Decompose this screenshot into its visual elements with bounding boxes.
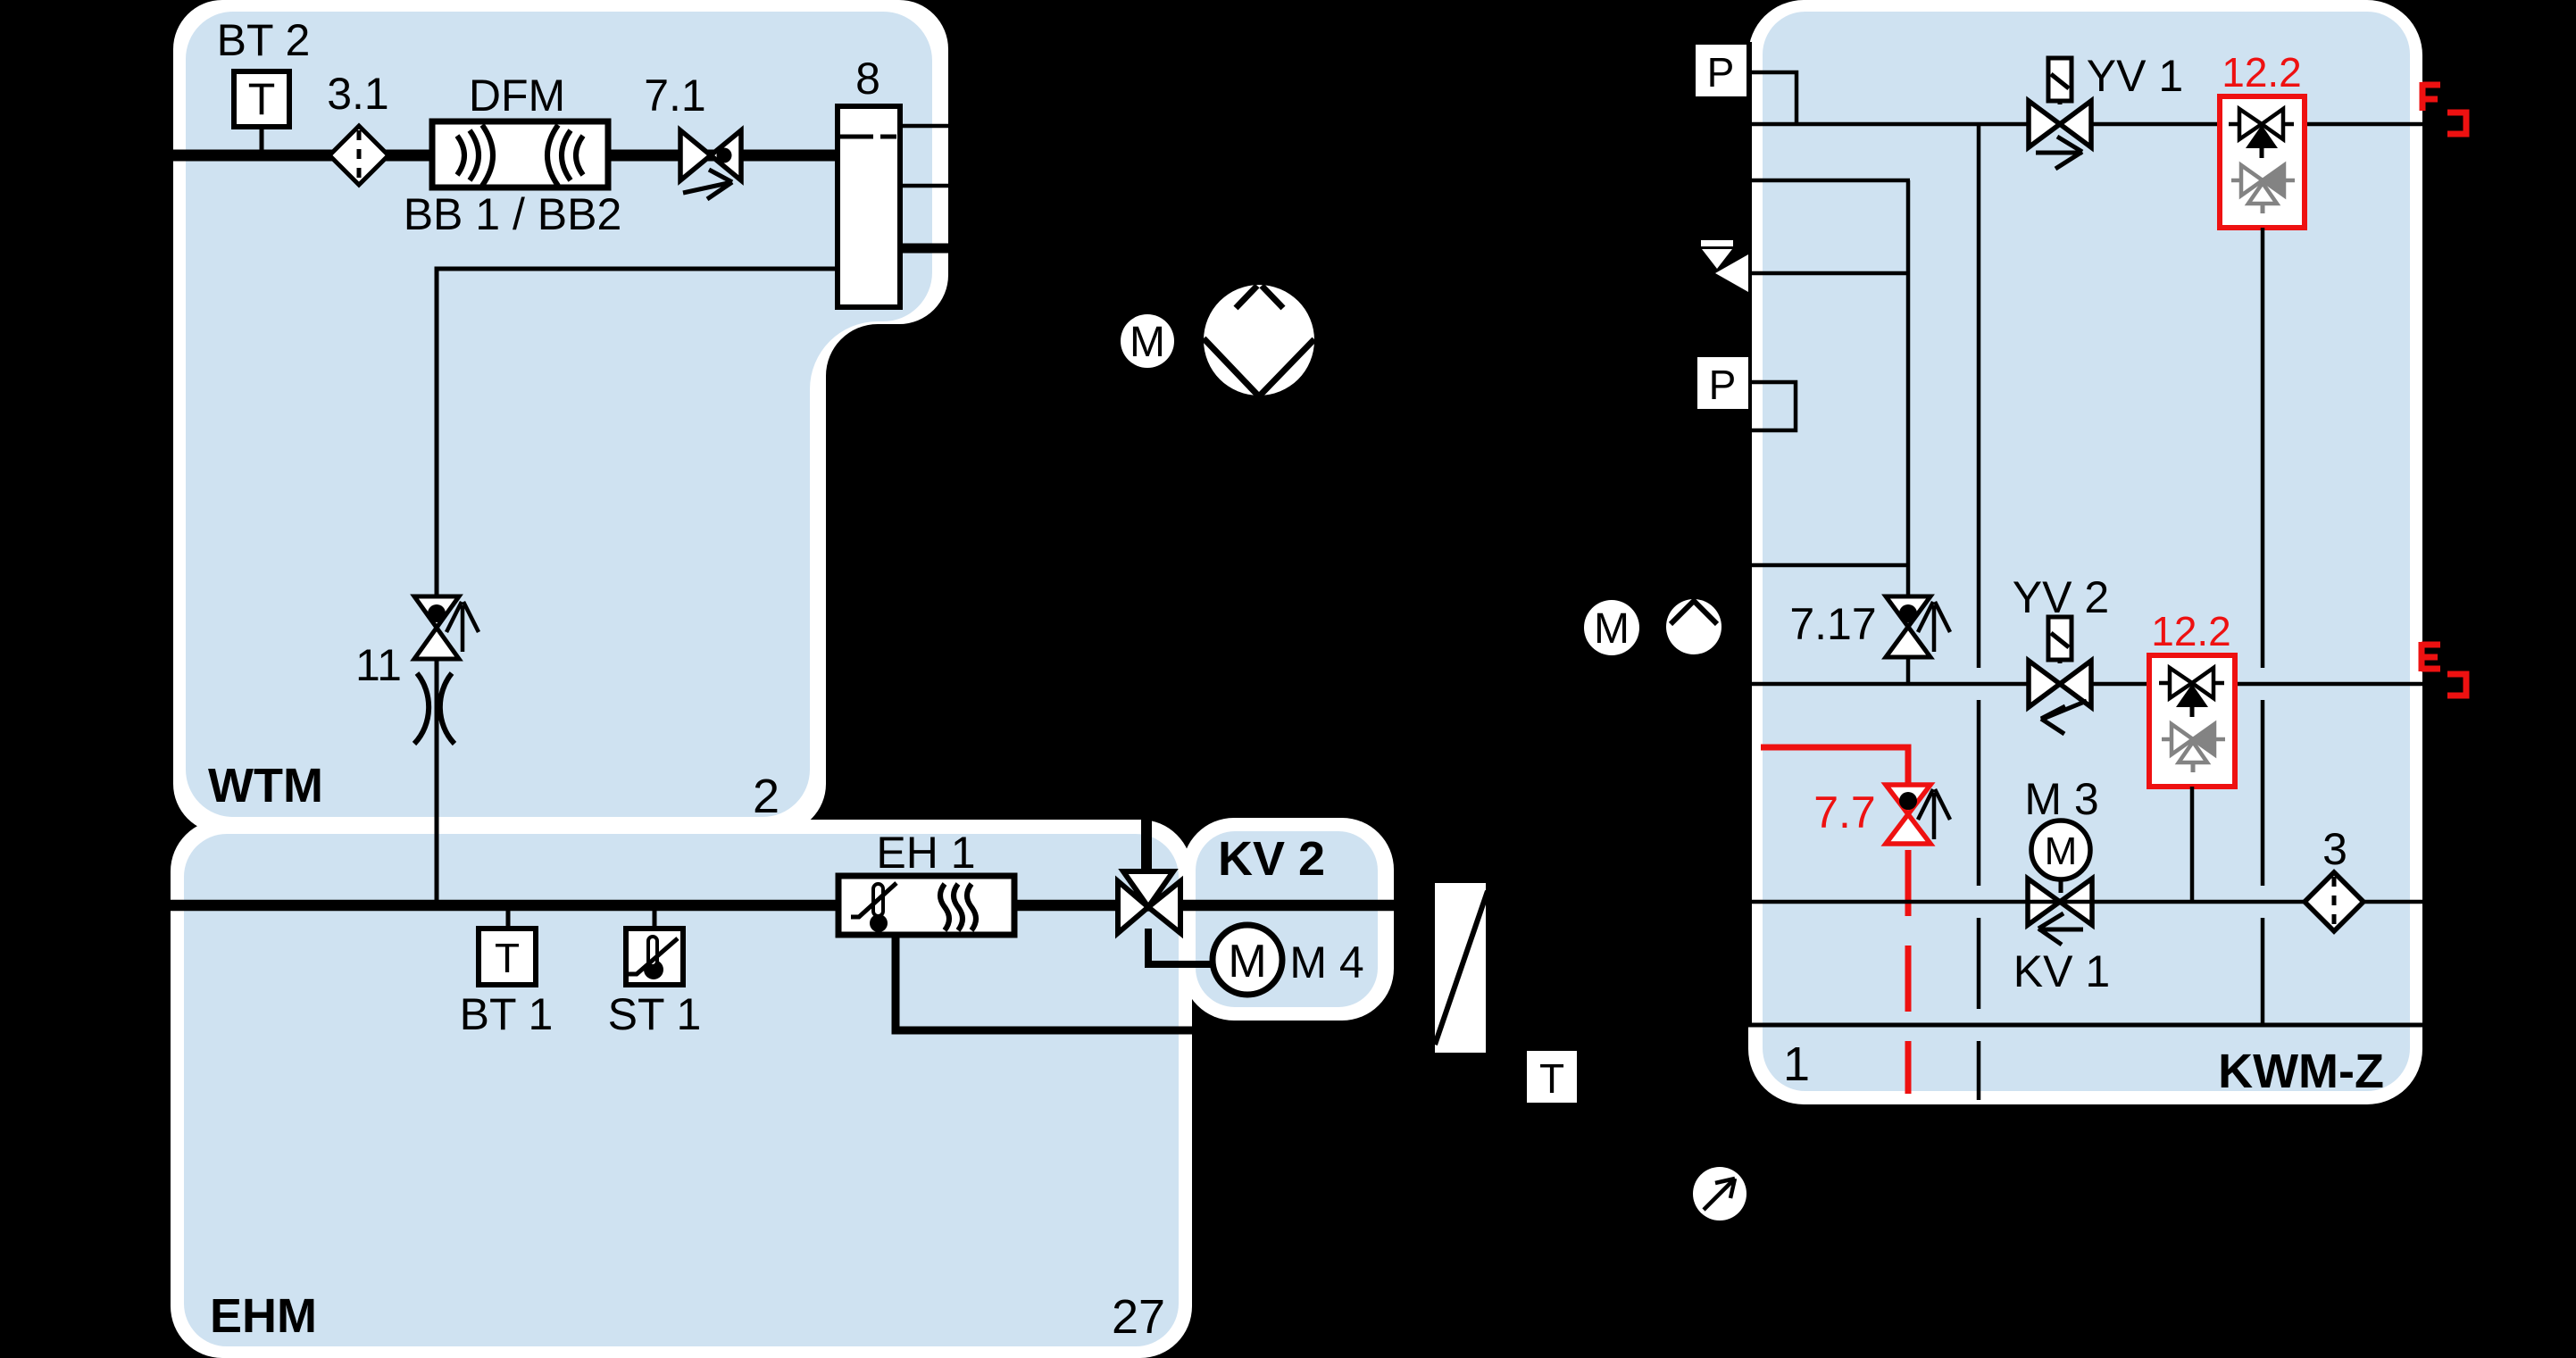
svg-text:M 4: M 4: [1289, 937, 1363, 987]
svg-text:M: M: [1228, 936, 1266, 987]
svg-text:8: 8: [855, 54, 880, 104]
svg-text:BT 1: BT 1: [460, 989, 554, 1039]
svg-text:KV 1: KV 1: [2013, 946, 2110, 996]
svg-text:BB 1 / BB2: BB 1 / BB2: [404, 189, 622, 239]
svg-text:P: P: [1709, 362, 1737, 408]
svg-text:7.7: 7.7: [1813, 787, 1876, 837]
svg-text:EH 1: EH 1: [876, 828, 975, 878]
svg-text:2: 2: [753, 770, 779, 823]
svg-text:12.2: 12.2: [2151, 608, 2231, 654]
svg-text:KV 2: KV 2: [1218, 832, 1325, 886]
svg-text:1: 1: [1783, 1037, 1810, 1091]
svg-text:KWM-Z: KWM-Z: [2218, 1045, 2384, 1098]
svg-text:M 3: M 3: [2024, 774, 2098, 824]
svg-text:M: M: [1130, 319, 1165, 366]
svg-text:DFM: DFM: [469, 71, 565, 121]
svg-text:3.1: 3.1: [327, 69, 389, 119]
svg-text:12.2: 12.2: [2222, 49, 2302, 96]
svg-text:7.17: 7.17: [1789, 599, 1876, 649]
svg-text:T: T: [495, 935, 520, 981]
svg-text:11: 11: [355, 640, 402, 690]
svg-text:T: T: [248, 74, 276, 124]
svg-text:ST 1: ST 1: [608, 989, 702, 1039]
svg-text:27: 27: [1112, 1290, 1165, 1344]
svg-text:WTM: WTM: [208, 759, 323, 812]
svg-text:BT 2: BT 2: [217, 15, 311, 65]
svg-text:T: T: [1539, 1055, 1564, 1102]
svg-text:7.1: 7.1: [644, 71, 706, 121]
svg-text:M: M: [2045, 829, 2078, 873]
svg-text:EHM: EHM: [210, 1289, 317, 1343]
svg-text:M: M: [1594, 605, 1630, 653]
svg-text:3: 3: [2322, 824, 2347, 874]
svg-text:YV 2: YV 2: [2013, 572, 2109, 622]
svg-text:P: P: [1707, 49, 1735, 96]
svg-text:YV 1: YV 1: [2087, 51, 2183, 101]
